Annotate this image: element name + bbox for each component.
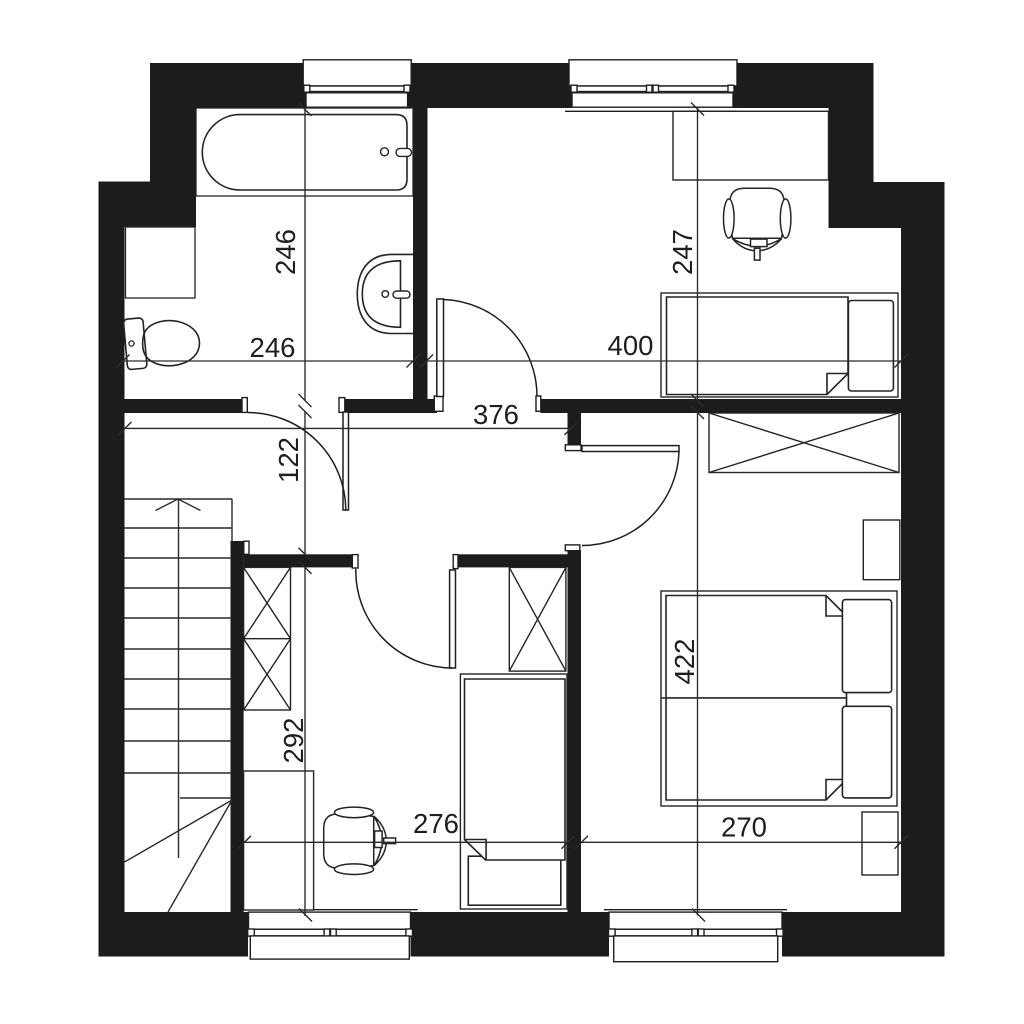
svg-text:247: 247 [667,229,698,275]
svg-text:400: 400 [608,330,654,361]
svg-text:276: 276 [413,808,459,839]
svg-text:246: 246 [250,332,296,363]
svg-text:422: 422 [669,639,700,685]
svg-text:246: 246 [270,229,301,275]
svg-text:376: 376 [473,399,519,430]
svg-text:292: 292 [278,718,309,764]
svg-text:122: 122 [273,437,304,483]
svg-text:270: 270 [721,812,767,843]
